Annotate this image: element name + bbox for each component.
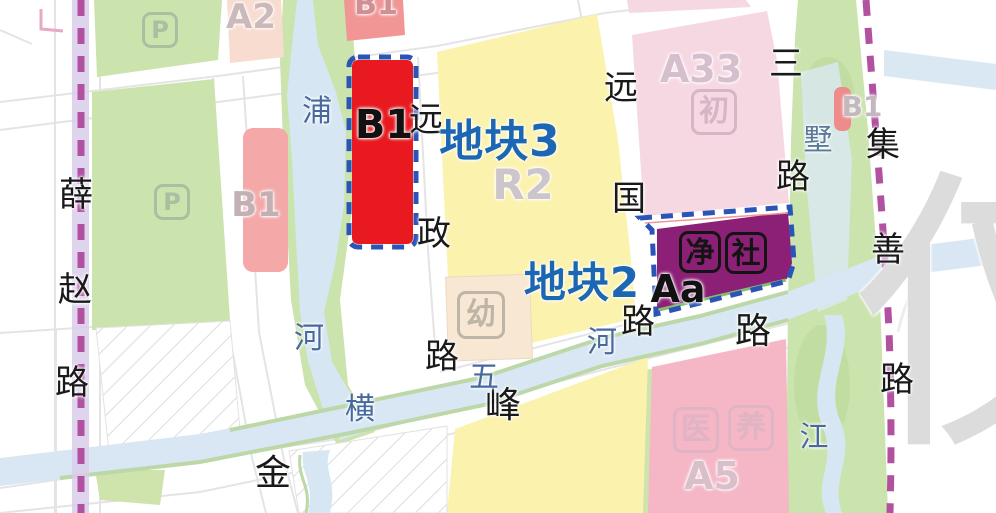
yuanzheng-road-label-0: 远	[409, 103, 443, 137]
parcel-b1-north-code: B1	[354, 0, 398, 20]
jishan-road-label-1: 善	[871, 233, 905, 267]
san-road-label-1: 路	[776, 160, 810, 194]
eldercare-icon: 养	[728, 405, 774, 451]
parking-icon: P	[154, 184, 190, 220]
pu-he-river-label-1: 河	[294, 324, 324, 354]
plot2-title: 地块2	[524, 262, 640, 304]
hengwu-he-river-label-2: 河	[587, 328, 617, 358]
hengwu-he-river-label-0: 横	[345, 395, 375, 425]
yuanguo-road-label-1: 国	[612, 182, 646, 216]
parcel-r2-code: R2	[492, 164, 554, 206]
parcel-b1-west-code: B1	[231, 188, 281, 222]
jiang-water-label-0: 江	[799, 423, 828, 452]
parcel-b1-east-code: B1	[842, 93, 883, 121]
sewage-icon: 净	[679, 231, 721, 273]
kindergarten-icon: 幼	[457, 291, 505, 339]
plot-b1-red-code: B1	[355, 105, 413, 145]
medical-icon: 医	[673, 407, 719, 453]
yuanguo-road-label-0: 远	[604, 71, 638, 105]
label-layer: 薛赵路远政路远国路三路集善路金峰路浦河横五河墅江地块3地块2B1AaA2B1B1…	[0, 0, 996, 513]
plot3-title: 地块3	[439, 120, 561, 164]
jishan-road-label-2: 路	[880, 363, 914, 397]
yuanzheng-road-label-2: 路	[425, 340, 459, 374]
san-road-label-0: 三	[769, 47, 803, 81]
parcel-a33-code: A33	[660, 50, 742, 88]
community-icon: 社	[725, 232, 767, 274]
jinfeng-road-label-2: 路	[735, 314, 771, 350]
xuezhao-road-label-0: 薛	[59, 178, 93, 212]
pu-he-river-label-0: 浦	[302, 97, 332, 127]
plot-aa-code: Aa	[650, 270, 705, 308]
xuezhao-road-label-2: 路	[55, 366, 89, 400]
xuezhao-road-label-1: 赵	[58, 273, 92, 307]
planning-map: 仅 薛赵路远政路远国路三路集善路金峰路浦河横五河墅江地块3地块2B1AaA2B1…	[0, 0, 996, 513]
jishan-road-label-0: 集	[866, 128, 900, 162]
junior-school-icon: 初	[691, 89, 737, 135]
hengwu-he-river-label-1: 五	[469, 363, 499, 393]
parcel-a2-code: A2	[226, 0, 276, 34]
jinfeng-road-label-0: 金	[255, 456, 291, 492]
shu-water-label-0: 墅	[803, 126, 832, 155]
parcel-a5-code: A5	[684, 457, 740, 495]
yuanzheng-road-label-1: 政	[417, 217, 451, 251]
parking-icon: P	[142, 12, 178, 48]
